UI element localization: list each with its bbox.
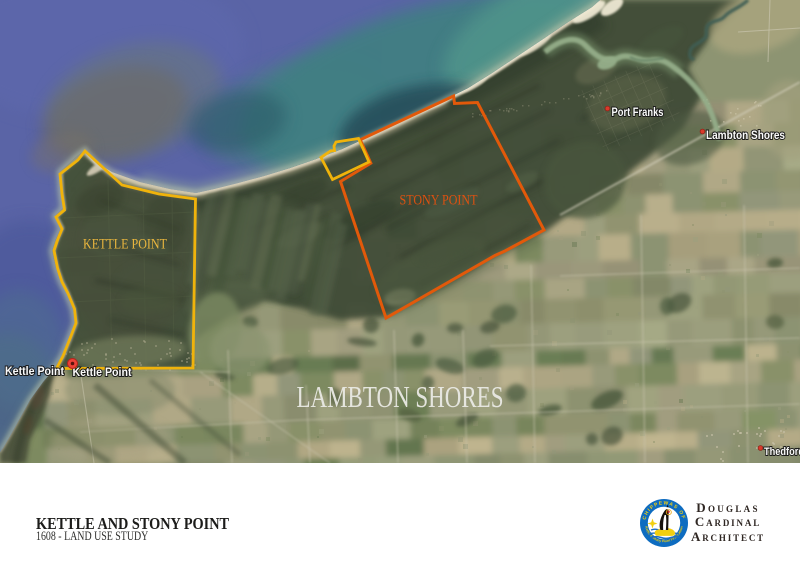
- svg-text:Kettle Point: Kettle Point: [73, 367, 132, 379]
- svg-text:Port Franks: Port Franks: [612, 107, 664, 119]
- svg-text:STONY POINT: STONY POINT: [400, 193, 478, 209]
- svg-text:Lambton Shores: Lambton Shores: [706, 130, 785, 142]
- svg-text:Thedford: Thedford: [764, 446, 800, 458]
- svg-text:LAMBTON SHORES: LAMBTON SHORES: [297, 379, 504, 414]
- svg-text:KETTLE POINT: KETTLE POINT: [83, 237, 167, 253]
- svg-text:Kettle Point: Kettle Point: [5, 366, 64, 378]
